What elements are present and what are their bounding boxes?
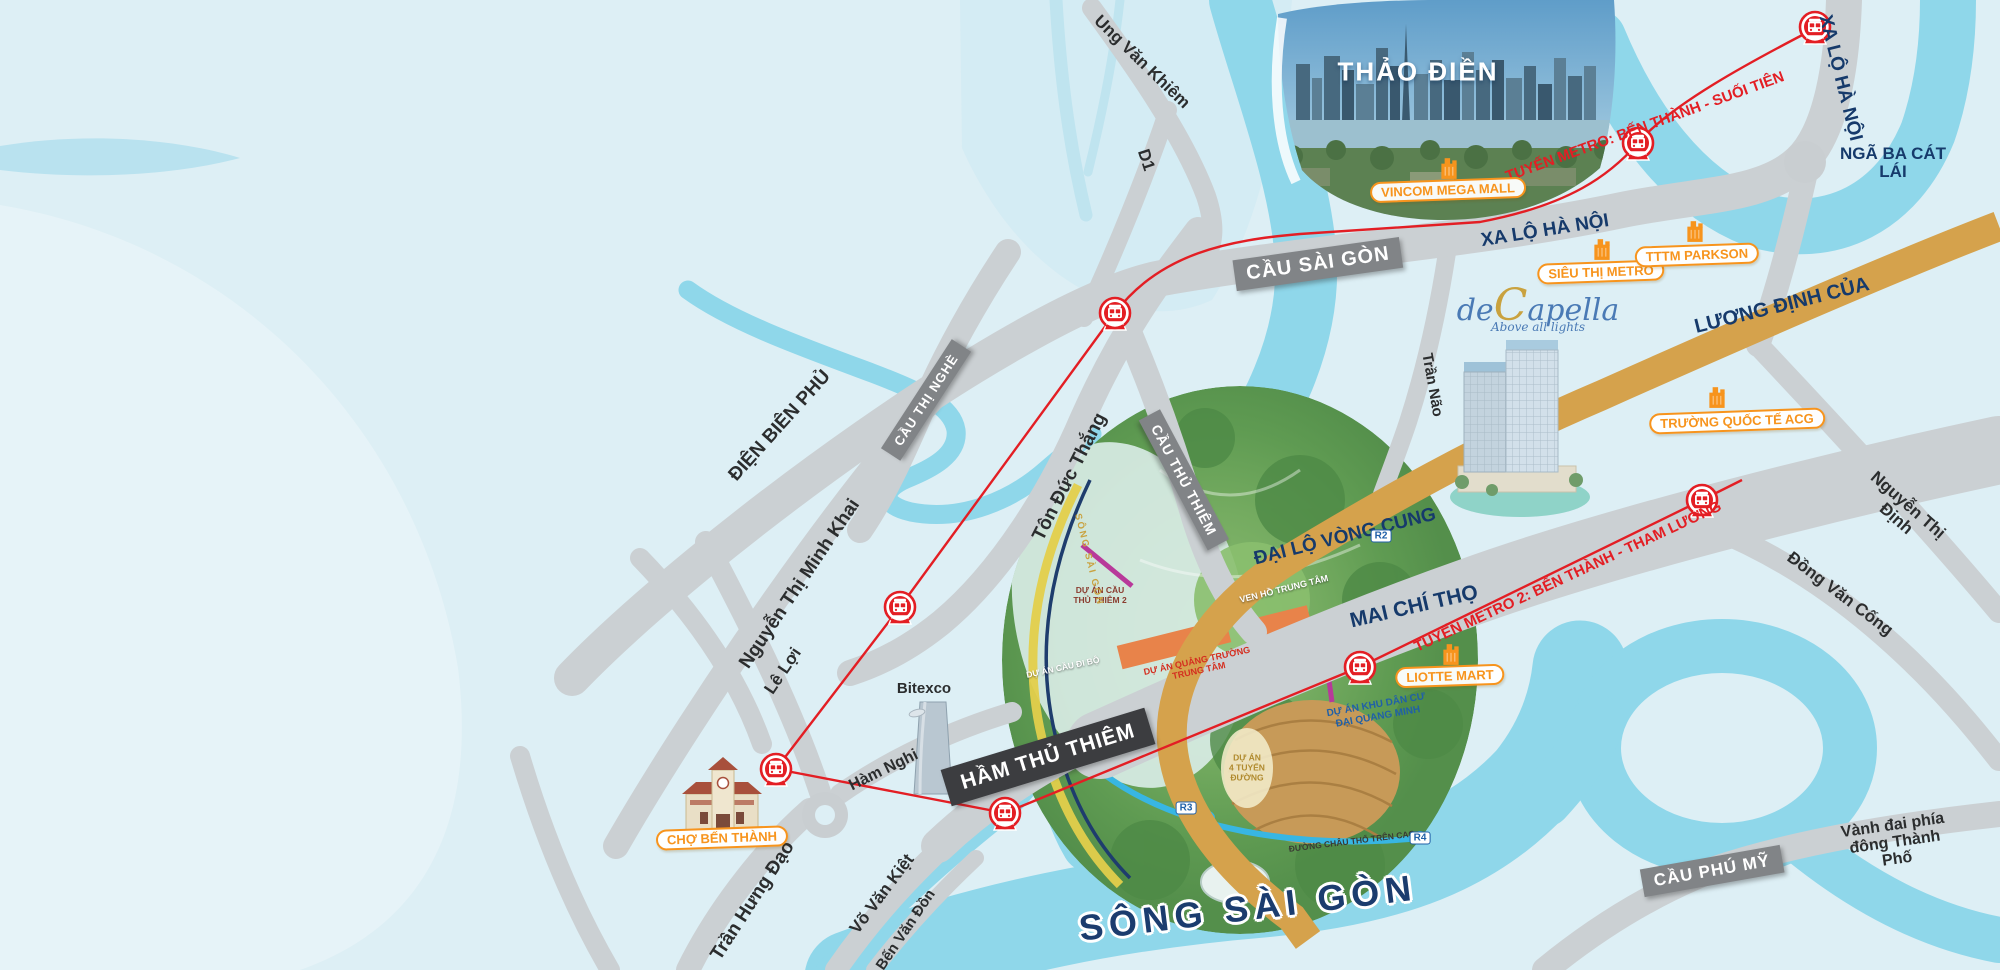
logo-de: de [1457,293,1494,328]
metro-station-icon [1345,652,1375,684]
mp-badge-r3: R3 [1176,802,1197,815]
mp-badge-r4: R4 [1410,832,1431,845]
metro-station-icon [885,592,915,624]
school-building-icon [1709,387,1724,408]
de-capella-building-art [1450,340,1590,517]
area-label-thao-dien: THẢO ĐIỀN [1338,58,1499,85]
mp-label-4-tuyen-duong: DỰ ÁN 4 TUYẾN ĐƯỜNG [1229,753,1265,782]
poi-label-bitexco: Bitexco [897,681,951,697]
project-logo-de-capella: deCapella Above all lights [1448,286,1628,334]
mp-badge-r2: R2 [1371,530,1392,543]
metro-station-icon [761,754,791,786]
map-canvas: THẢO ĐIỀN XA LỘ HÀ NỘI XA LỘ HÀ NỘI NGÃ … [0,0,2000,970]
ben-thanh-market-art [682,757,762,830]
mall-building-icon [1687,221,1702,242]
mall-building-icon [1594,239,1609,260]
metro-station-icon [1100,298,1130,330]
poi-pill-liotte-mart: LIOTTE MART [1395,664,1505,689]
metro-station-icon [990,798,1020,830]
road-left-edge [520,756,610,970]
river-loop-right [1594,646,1850,850]
poi-pill-tttm-parkson: TTTM PARKSON [1635,242,1760,267]
map-graphics [0,0,2000,970]
area-label-nga-ba-cat-lai: NGÃ BA CÁT LÁI [1840,145,1947,181]
